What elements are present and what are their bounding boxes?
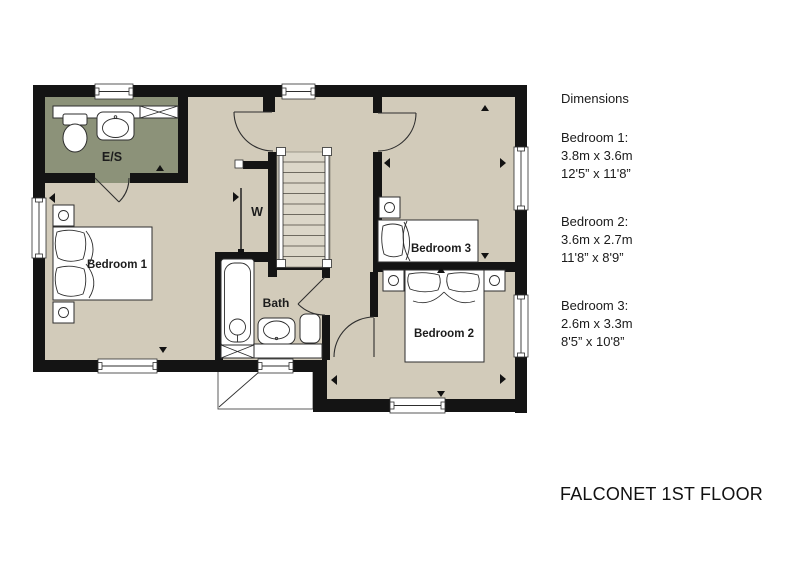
wall-end-post [235,160,243,168]
dimension-group-bedroom1: Bedroom 1: 3.8m x 3.6m 12'5” x 11'8” [561,129,771,183]
bathtub [221,259,254,346]
bedroom2-label: Bedroom 2 [414,328,474,340]
plan-title: FALCONET 1ST FLOOR [560,484,763,505]
wall-right [515,85,527,413]
dimensions-panel: Dimensions Bedroom 1: 3.8m x 3.6m 12'5” … [561,90,771,351]
porch-outline [218,371,313,409]
window-bottom-bath [258,359,293,373]
window-right-bedroom3 [514,147,528,210]
bed-3 [378,220,478,262]
room-imperial: 12'5” x 11'8” [561,165,771,183]
nightstand [484,270,505,291]
window-right-bedroom2 [514,295,528,357]
room-metric: 2.6m x 3.3m [561,315,771,333]
window-bottom-bedroom1 [98,359,157,373]
window-top-ensuite [95,84,133,99]
window-left-bedroom1 [32,198,46,258]
room-metric: 3.8m x 3.6m [561,147,771,165]
panel-heading: Dimensions [561,90,771,108]
bedroom3-label: Bedroom 3 [411,243,471,255]
shower-cupboard [221,345,254,358]
dimension-group-bedroom3: Bedroom 3: 2.6m x 3.3m 8'5” x 10'8” [561,297,771,351]
sink [97,112,134,140]
bath-counter [254,344,322,358]
dimension-group-bedroom2: Bedroom 2: 3.6m x 2.7m 11'8” x 8'9” [561,213,771,267]
bath-toilet [300,314,320,343]
ensuite-label: E/S [102,150,122,164]
wall-bath-right [322,315,330,360]
room-name: Bedroom 3: [561,297,771,315]
floor-plan-page: E/S Bedroom 1 W Bath Bedroom 3 Bedroom 2… [0,0,794,561]
wall-ensuite-bottom-right [130,173,188,183]
bed-2 [405,270,484,362]
room-name: Bedroom 2: [561,213,771,231]
bath-sink [258,318,295,344]
airing-cupboard [140,106,178,118]
window-bottom-bedroom2 [390,398,445,413]
wall-landing-jamb [263,97,275,112]
nightstand [53,205,74,226]
wall-bed3-jamb [373,97,382,113]
room-name: Bedroom 1: [561,129,771,147]
wardrobe-label: W [251,205,263,219]
wall-ensuite-bottom-left [45,173,95,183]
wall-stub-stairs [243,161,268,169]
room-metric: 3.6m x 2.7m [561,231,771,249]
bedroom1-label: Bedroom 1 [87,259,148,271]
nightstand [379,197,400,218]
wall-bed2-west [370,272,378,317]
wall-ensuite-right [178,97,188,183]
wall-stub-bath-door [322,270,330,278]
room-imperial: 8'5” x 10'8” [561,333,771,351]
bath-label: Bath [263,296,290,310]
nightstand [53,302,74,323]
room-imperial: 11'8” x 8'9” [561,249,771,267]
nightstand [383,270,404,291]
toilet [63,114,87,152]
window-top-landing [282,84,315,99]
